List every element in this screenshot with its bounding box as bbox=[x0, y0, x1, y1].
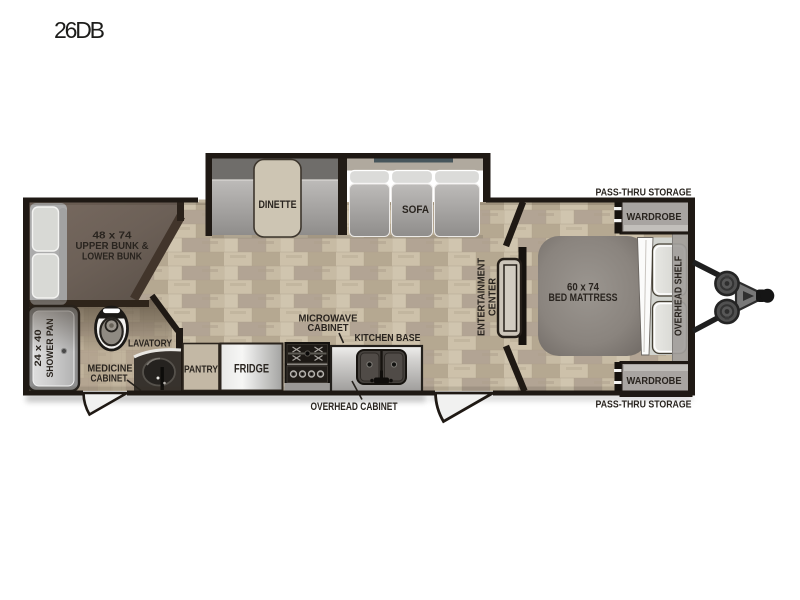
svg-text:LAVATORY: LAVATORY bbox=[128, 339, 172, 350]
svg-text:KITCHEN BASE: KITCHEN BASE bbox=[355, 332, 421, 344]
svg-text:CENTER: CENTER bbox=[488, 277, 499, 316]
svg-text:BED MATTRESS: BED MATTRESS bbox=[549, 292, 618, 304]
svg-text:SOFA: SOFA bbox=[402, 204, 429, 216]
svg-text:ENTERTAINMENT: ENTERTAINMENT bbox=[477, 258, 488, 336]
svg-text:WARDROBE: WARDROBE bbox=[627, 376, 682, 387]
svg-text:FRIDGE: FRIDGE bbox=[234, 364, 269, 376]
svg-text:CABINET: CABINET bbox=[91, 374, 128, 385]
svg-text:CABINET: CABINET bbox=[308, 322, 350, 334]
svg-text:OVERHEAD SHELF: OVERHEAD SHELF bbox=[674, 256, 685, 336]
svg-text:PANTRY: PANTRY bbox=[184, 365, 218, 376]
svg-text:OVERHEAD CABINET: OVERHEAD CABINET bbox=[311, 401, 398, 413]
svg-text:LOWER BUNK: LOWER BUNK bbox=[82, 251, 142, 263]
svg-text:PASS-THRU STORAGE: PASS-THRU STORAGE bbox=[596, 187, 692, 199]
svg-text:DINETTE: DINETTE bbox=[259, 199, 297, 211]
svg-text:PASS-THRU STORAGE: PASS-THRU STORAGE bbox=[596, 399, 692, 411]
svg-text:WARDROBE: WARDROBE bbox=[627, 212, 682, 223]
svg-text:26DB: 26DB bbox=[54, 17, 105, 43]
